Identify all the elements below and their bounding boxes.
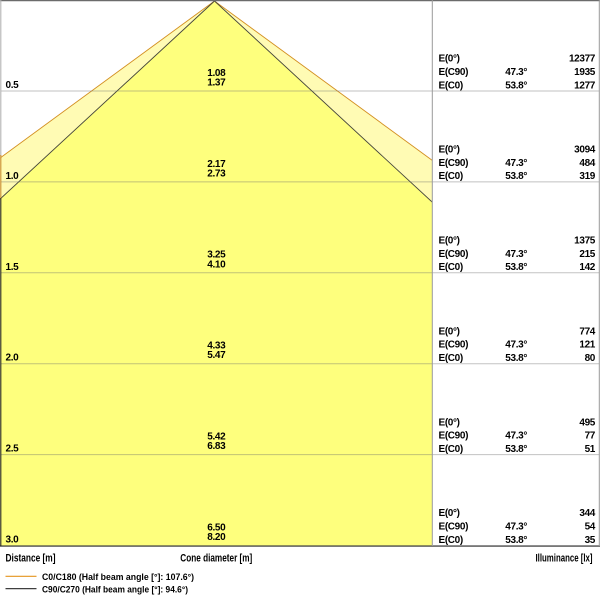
svg-text:484: 484 bbox=[579, 158, 595, 169]
svg-text:77: 77 bbox=[585, 431, 596, 442]
svg-text:47.3°: 47.3° bbox=[505, 249, 527, 260]
svg-text:E(C0): E(C0) bbox=[439, 80, 463, 91]
svg-text:E(C90): E(C90) bbox=[439, 340, 469, 351]
svg-text:0.5: 0.5 bbox=[6, 80, 20, 91]
svg-text:54: 54 bbox=[585, 522, 596, 533]
svg-text:E(C0): E(C0) bbox=[439, 171, 463, 182]
svg-text:142: 142 bbox=[579, 262, 595, 273]
svg-text:E(C0): E(C0) bbox=[439, 535, 463, 546]
svg-text:344: 344 bbox=[579, 508, 595, 519]
svg-text:E(C90): E(C90) bbox=[439, 431, 469, 442]
svg-text:C0/C180 (Half beam angle [°]:: C0/C180 (Half beam angle [°]: 107.6°) bbox=[42, 572, 194, 583]
svg-text:E(C0): E(C0) bbox=[439, 262, 463, 273]
svg-text:1935: 1935 bbox=[574, 67, 596, 78]
svg-text:1.5: 1.5 bbox=[6, 262, 20, 273]
svg-text:121: 121 bbox=[579, 340, 595, 351]
svg-text:53.8°: 53.8° bbox=[505, 262, 527, 273]
svg-text:53.8°: 53.8° bbox=[505, 444, 527, 455]
svg-text:3094: 3094 bbox=[574, 145, 596, 156]
svg-text:51: 51 bbox=[585, 444, 596, 455]
svg-text:47.3°: 47.3° bbox=[505, 67, 527, 78]
svg-text:Cone diameter [m]: Cone diameter [m] bbox=[180, 552, 252, 564]
svg-text:E(0°): E(0°) bbox=[439, 417, 460, 428]
svg-text:53.8°: 53.8° bbox=[505, 171, 527, 182]
svg-text:2.0: 2.0 bbox=[6, 353, 20, 364]
svg-text:E(C0): E(C0) bbox=[439, 353, 463, 364]
svg-text:774: 774 bbox=[579, 326, 595, 337]
svg-text:E(0°): E(0°) bbox=[439, 54, 460, 65]
svg-text:6.83: 6.83 bbox=[207, 441, 226, 452]
svg-text:47.3°: 47.3° bbox=[505, 431, 527, 442]
svg-text:Illuminance [lx]: Illuminance [lx] bbox=[536, 552, 593, 564]
svg-text:1277: 1277 bbox=[574, 80, 596, 91]
svg-text:E(0°): E(0°) bbox=[439, 145, 460, 156]
svg-text:47.3°: 47.3° bbox=[505, 522, 527, 533]
svg-text:2.73: 2.73 bbox=[207, 168, 226, 179]
svg-text:E(C90): E(C90) bbox=[439, 522, 469, 533]
svg-text:Distance [m]: Distance [m] bbox=[6, 552, 56, 564]
svg-text:E(C90): E(C90) bbox=[439, 158, 469, 169]
svg-text:1375: 1375 bbox=[574, 236, 596, 247]
svg-text:2.5: 2.5 bbox=[6, 444, 20, 455]
svg-text:E(C90): E(C90) bbox=[439, 67, 469, 78]
svg-text:4.10: 4.10 bbox=[207, 259, 226, 270]
svg-text:5.47: 5.47 bbox=[207, 350, 226, 361]
svg-text:8.20: 8.20 bbox=[207, 532, 226, 543]
svg-text:215: 215 bbox=[579, 249, 595, 260]
svg-text:E(0°): E(0°) bbox=[439, 326, 460, 337]
svg-text:E(0°): E(0°) bbox=[439, 236, 460, 247]
svg-text:C90/C270 (Half beam angle [°]:: C90/C270 (Half beam angle [°]: 94.6°) bbox=[42, 585, 188, 596]
svg-text:53.8°: 53.8° bbox=[505, 353, 527, 364]
svg-text:319: 319 bbox=[579, 171, 595, 182]
svg-text:3.0: 3.0 bbox=[6, 535, 20, 546]
svg-text:1.37: 1.37 bbox=[207, 78, 226, 89]
svg-text:53.8°: 53.8° bbox=[505, 80, 527, 91]
svg-text:12377: 12377 bbox=[569, 54, 596, 65]
svg-text:495: 495 bbox=[579, 417, 595, 428]
svg-text:1.0: 1.0 bbox=[6, 171, 20, 182]
svg-text:E(0°): E(0°) bbox=[439, 508, 460, 519]
svg-text:47.3°: 47.3° bbox=[505, 158, 527, 169]
svg-text:80: 80 bbox=[585, 353, 596, 364]
svg-text:35: 35 bbox=[585, 535, 596, 546]
svg-text:E(C90): E(C90) bbox=[439, 249, 469, 260]
svg-text:53.8°: 53.8° bbox=[505, 535, 527, 546]
svg-text:47.3°: 47.3° bbox=[505, 340, 527, 351]
svg-text:E(C0): E(C0) bbox=[439, 444, 463, 455]
